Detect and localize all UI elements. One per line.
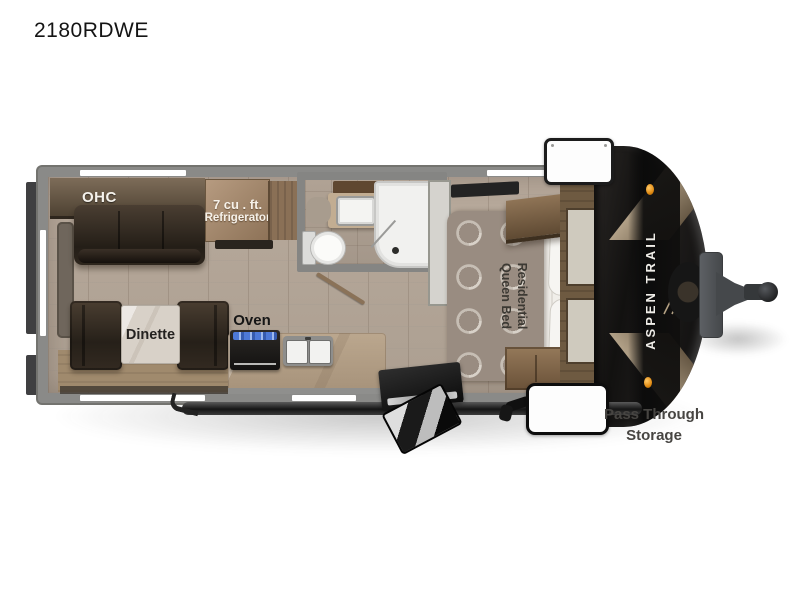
oven-range — [230, 330, 280, 370]
hitch-ball-coupler — [758, 282, 778, 302]
refrigerator-label: Refrigerator — [205, 212, 271, 224]
model-number-title: 2180RDWE — [34, 19, 149, 43]
dinette-bench-right — [177, 301, 229, 370]
door-screw — [551, 144, 554, 147]
storage-label-line1: Pass Through — [598, 404, 710, 425]
pass-through-storage-label: Pass Through Storage — [598, 404, 710, 446]
window-kitchen — [292, 395, 356, 401]
bed-label-line1: Residential — [513, 221, 529, 371]
bench-back-seam — [82, 305, 85, 366]
clearance-light-icon — [644, 377, 652, 388]
refrigerator-size-label: 7 cu . ft. — [213, 197, 262, 212]
bench-back-seam — [214, 305, 217, 366]
window-rear — [40, 230, 46, 336]
toilet — [310, 231, 346, 265]
bathroom-counter-end — [306, 197, 331, 224]
shower-drain — [392, 247, 399, 254]
refrigerator: 7 cu . ft. Refrigerator — [205, 179, 270, 242]
dinette-table: Dinette — [121, 305, 180, 364]
window-top-bedroom — [487, 170, 552, 176]
refrigerator-vent — [215, 240, 273, 249]
door-screw — [604, 144, 607, 147]
oven-label: Oven — [224, 312, 280, 329]
sink-basin-right — [309, 340, 331, 364]
queen-bed-label: Residential Queen Bed — [495, 221, 529, 371]
pass-through-door-bottom — [526, 383, 609, 435]
bathroom-sink — [336, 196, 376, 226]
ohc-label: OHC — [50, 189, 117, 206]
brand-label: ASPEN TRAIL — [643, 185, 661, 395]
wardrobe-cabinet — [268, 181, 299, 240]
pass-through-door-top — [544, 138, 614, 185]
dinette-window-shadow — [60, 386, 232, 394]
oven-handle — [234, 363, 276, 365]
dinette-label: Dinette — [126, 327, 175, 343]
floorplan-image: 2180RDWE OHC 7 cu . ft. Refrigerator — [0, 0, 800, 600]
sofa — [74, 205, 205, 265]
dresser-drawer-seam — [535, 355, 537, 382]
stove-burners — [233, 332, 277, 340]
window-top-curbside — [80, 170, 186, 176]
storage-label-line2: Storage — [598, 425, 710, 446]
dinette-bench-left — [70, 301, 122, 370]
kitchen-sink — [283, 336, 333, 366]
bed-label-line2: Queen Bed — [498, 221, 514, 371]
clearance-light-icon — [646, 184, 654, 195]
kitchen-counter-edge — [228, 388, 386, 394]
shower-glass-door — [371, 220, 397, 248]
sink-basin-left — [286, 340, 308, 364]
sink-faucet — [305, 337, 311, 340]
sofa-bolster — [78, 249, 201, 263]
